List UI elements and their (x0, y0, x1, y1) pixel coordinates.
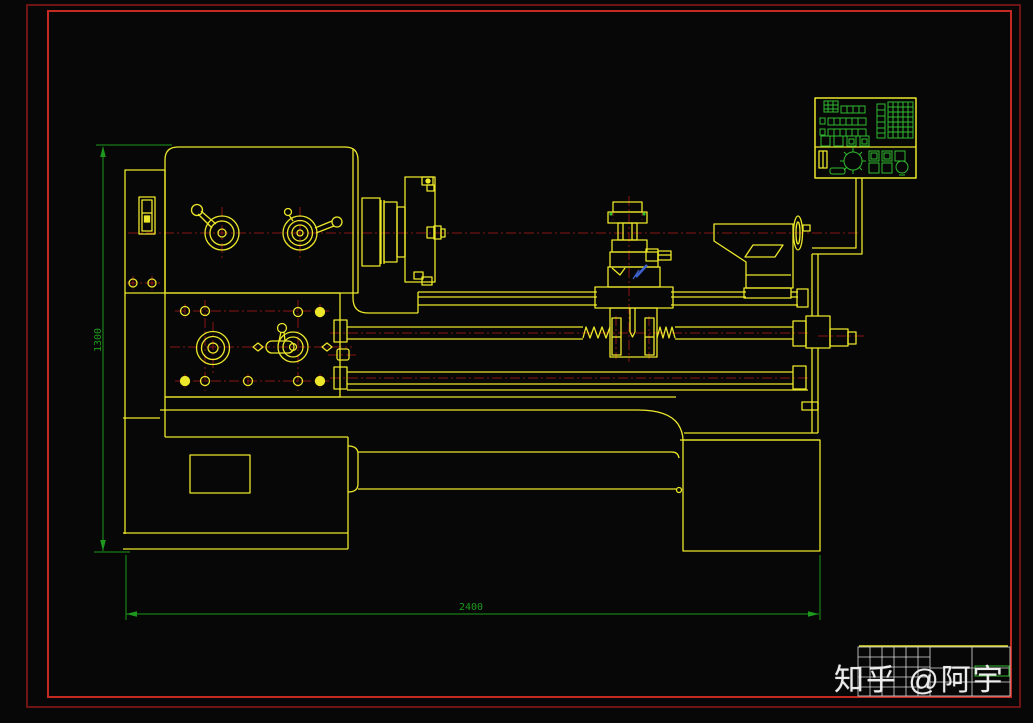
frame-outer (27, 5, 1020, 707)
lathe-outline (123, 98, 916, 551)
headstock (125, 147, 358, 293)
feed-gearbox (165, 293, 340, 397)
button-row-2 (820, 118, 866, 125)
selector-knob (840, 148, 866, 174)
keypad-grid (888, 102, 913, 138)
watermark: 知乎 @阿宇 (834, 655, 1024, 693)
square-buttons (869, 151, 908, 175)
panel-support-arm (812, 178, 862, 433)
small-pill-button (830, 168, 845, 174)
frame-inner (48, 11, 1011, 697)
display-grid-icon (824, 101, 838, 112)
function-buttons (821, 136, 869, 146)
button-row-1 (841, 106, 865, 113)
access-panel (190, 455, 250, 493)
dim-height-label: 1300 (93, 328, 104, 352)
cad-canvas: 1300 2400 (0, 0, 1033, 723)
dimension-1300: 1300 (93, 145, 172, 552)
bed-ways (160, 289, 856, 440)
power-knob (896, 161, 908, 173)
spindle-speed-levers (192, 205, 343, 251)
dro-panel-controls (820, 101, 913, 175)
dimension-2400: 2400 (126, 555, 820, 620)
lathe-drawing: 1300 2400 (0, 0, 1033, 723)
machine-base (123, 293, 820, 551)
side-key-column (877, 104, 885, 138)
drawing-frame (27, 5, 1020, 707)
tailstock (714, 216, 810, 298)
button-row-3 (820, 129, 866, 136)
dim-length-label: 2400 (459, 602, 483, 613)
